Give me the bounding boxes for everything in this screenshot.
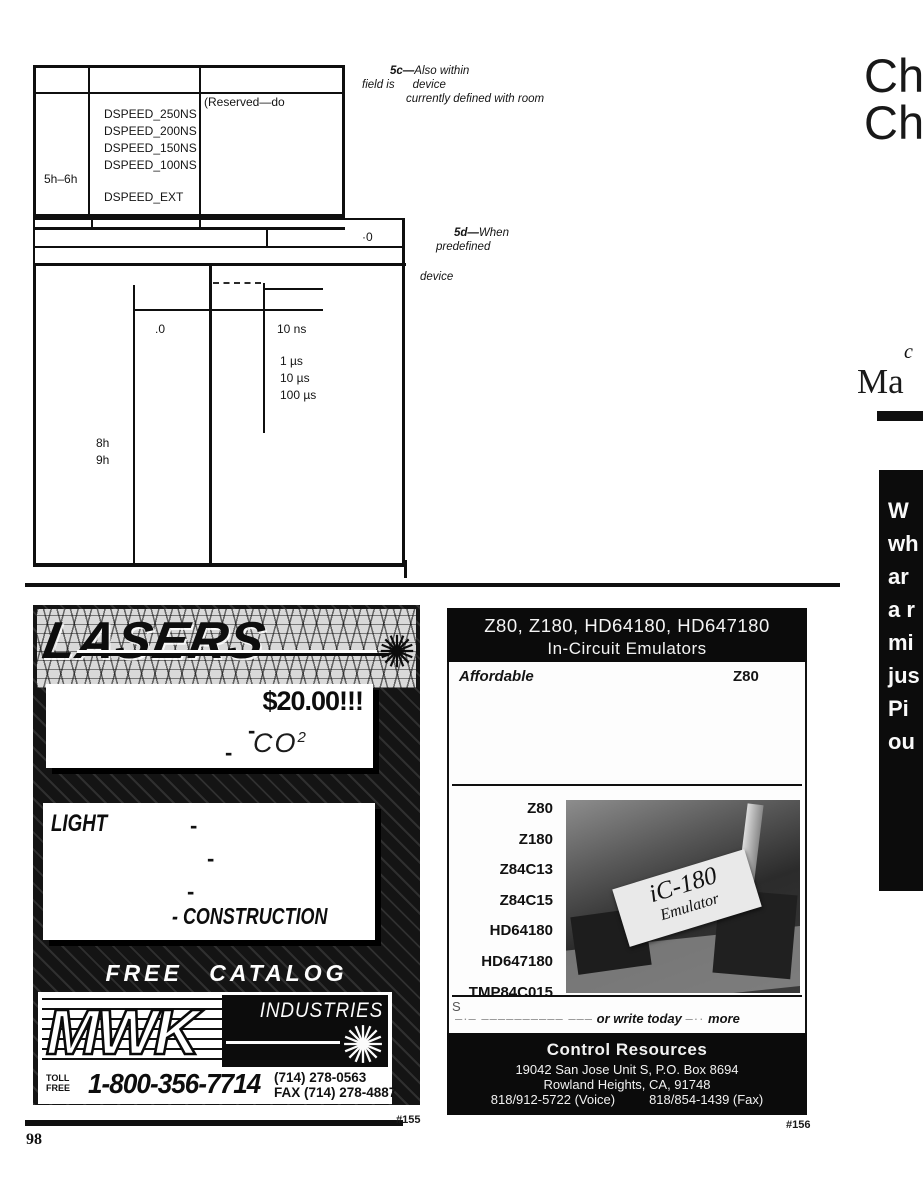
panel-line: ou — [888, 725, 923, 758]
toll-free-label: TOLL FREE — [46, 1074, 70, 1093]
industries-rule — [226, 1041, 340, 1044]
caption-text: device — [413, 79, 446, 91]
faded-dashes: –·– –––––––––– ––– — [455, 1011, 593, 1026]
figure-caption-device: device — [420, 270, 453, 284]
panel-line: ar — [888, 560, 923, 593]
cta-phrase: or write today — [597, 1011, 682, 1026]
phone-number: 1-800-356-7714 — [88, 1068, 260, 1100]
price-text: $20.00!!! — [262, 686, 363, 717]
svg-text:MWK: MWK — [46, 996, 205, 1068]
product-item: HD647180 — [447, 947, 553, 978]
product-item: Z180 — [447, 825, 553, 856]
timing-value: 1 µs — [280, 354, 303, 368]
industries-text: INDUSTRIES — [246, 999, 383, 1023]
heading-rule-fragment — [877, 411, 923, 421]
product-list: Z80 Z180 Z84C13 Z84C15 HD64180 HD647180 … — [447, 794, 553, 1008]
emulator-title: Z80, Z180, HD64180, HD647180 — [447, 608, 807, 637]
fax-number: FAX (714) 278-4887 — [274, 1085, 396, 1100]
bullet-dash: - — [187, 887, 194, 897]
panel-line: mi — [888, 626, 923, 659]
reserved-note: (Reserved—do — [204, 95, 285, 109]
dspeed-value: DSPEED_150NS — [104, 140, 197, 157]
register-range-label: 9h — [96, 453, 109, 467]
table3-cell-value: .0 — [155, 322, 165, 336]
lasers-banner: LASERS — [37, 609, 416, 688]
serif-fragment: Ma — [857, 362, 904, 402]
caption-text: currently defined with room — [406, 92, 544, 106]
caption-tag: 5c— — [390, 65, 414, 77]
company-name: Control Resources — [447, 1033, 807, 1060]
address-line: Rowland Heights, CA, 91748 — [447, 1077, 807, 1092]
co2-text: CO2 — [253, 728, 308, 759]
lasers-ad-bottom-rule — [25, 1120, 403, 1126]
sidebar-ad-panel-fragment: W wh ar a r mi jus Pi ou — [879, 470, 923, 891]
product-item: HD64180 — [447, 916, 553, 947]
phone-number-secondary: (714) 278-0563 — [274, 1070, 396, 1085]
cta-more: more — [708, 1011, 740, 1026]
product-item: Z80 — [447, 794, 553, 825]
ad-reference: #155 — [396, 1114, 420, 1126]
z80-label: Z80 — [733, 670, 759, 684]
dspeed-value: DSPEED_100NS — [104, 157, 197, 174]
caption-text: Also within — [414, 65, 469, 77]
panel-line: Pi — [888, 692, 923, 725]
fax-number: 818/854-1439 (Fax) — [649, 1092, 763, 1107]
affordable-text: Affordable — [459, 670, 534, 684]
starburst-icon — [379, 633, 415, 669]
register-range-label: 8h — [96, 436, 109, 450]
mwk-logo-box: MWK INDUSTRIES TOLL FREE 1-800-356 — [38, 992, 392, 1104]
figure-caption-5d: 5d—When predefined — [436, 226, 509, 254]
timing-value: 100 µs — [280, 388, 316, 402]
column-divider — [25, 583, 840, 587]
serif-fragment-small: c — [904, 341, 913, 364]
dspeed-value: DSPEED_250NS — [104, 106, 197, 123]
free-catalog-text: FREE CATALOG — [37, 960, 416, 987]
page-number: 98 — [26, 1131, 42, 1149]
figure-caption-5c: 5c—Also within field isdevice currently … — [362, 64, 544, 106]
faded-dashes: –·· — [686, 1011, 705, 1026]
emulator-ad-header: Z80, Z180, HD64180, HD647180 In-Circuit … — [447, 608, 807, 662]
caption-text: When — [479, 227, 509, 239]
register-range-label: 5h–6h — [44, 172, 77, 186]
product-item: Z84C13 — [447, 855, 553, 886]
dspeed-value: DSPEED_200NS — [104, 123, 197, 140]
bullet-dash: - — [225, 748, 232, 758]
lasers-title: LASERS — [38, 611, 270, 671]
panel-line: jus — [888, 659, 923, 692]
caption-text: predefined — [436, 240, 509, 254]
article-heading-fragment: Ch Ch — [864, 52, 923, 146]
emulator-photo: iC-180 Emulator — [566, 800, 800, 993]
co2-superscript: 2 — [298, 729, 308, 746]
table2-cell-value: ·0 — [362, 230, 373, 244]
panel-line: W — [888, 494, 923, 527]
magazine-page: 5h–6h DSPEED_250NS DSPEED_200NS DSPEED_1… — [0, 0, 923, 1191]
light-text: LIGHT — [51, 810, 123, 838]
product-item: TMP84C015 — [447, 978, 553, 1009]
panel-line: a r — [888, 593, 923, 626]
voice-number: 818/912-5722 (Voice) — [491, 1092, 615, 1107]
mwk-logo: MWK — [44, 992, 230, 1068]
lasers-offer-box: $20.00!!! - - CO2 — [46, 684, 373, 768]
caption-text: field is — [362, 79, 395, 91]
contact-line: 818/912-5722 (Voice)818/854-1439 (Fax) — [447, 1092, 807, 1108]
lasers-list-box: LIGHT - - - - CONSTRUCTION — [43, 803, 375, 940]
emulator-subtitle: In-Circuit Emulators — [447, 637, 807, 659]
dspeed-ext-value: DSPEED_EXT — [104, 190, 183, 204]
starburst-icon — [342, 1023, 384, 1065]
phone-fax-stack: (714) 278-0563 FAX (714) 278-4887 — [274, 1070, 396, 1100]
panel-line: wh — [888, 527, 923, 560]
bullet-dash: - — [207, 854, 214, 864]
ad-reference: #156 — [786, 1119, 810, 1131]
construction-text: - CONSTRUCTION — [172, 903, 371, 930]
lasers-ad: LASERS $20.00!!! - - CO2 LIGHT - — [33, 605, 420, 1105]
timing-value: 10 µs — [280, 371, 310, 385]
product-item: Z84C15 — [447, 886, 553, 917]
bullet-dash: - — [190, 821, 197, 831]
caption-tag: 5d— — [454, 227, 479, 239]
industries-box: INDUSTRIES — [222, 995, 388, 1067]
address-line: 19042 San Jose Unit S, P.O. Box 8694 — [447, 1060, 807, 1077]
timing-value: 10 ns — [277, 322, 306, 336]
call-to-action-line: –·– –––––––––– ––– or write today –·· mo… — [455, 1011, 800, 1026]
emulator-ad-footer: Control Resources 19042 San Jose Unit S,… — [447, 1033, 807, 1115]
